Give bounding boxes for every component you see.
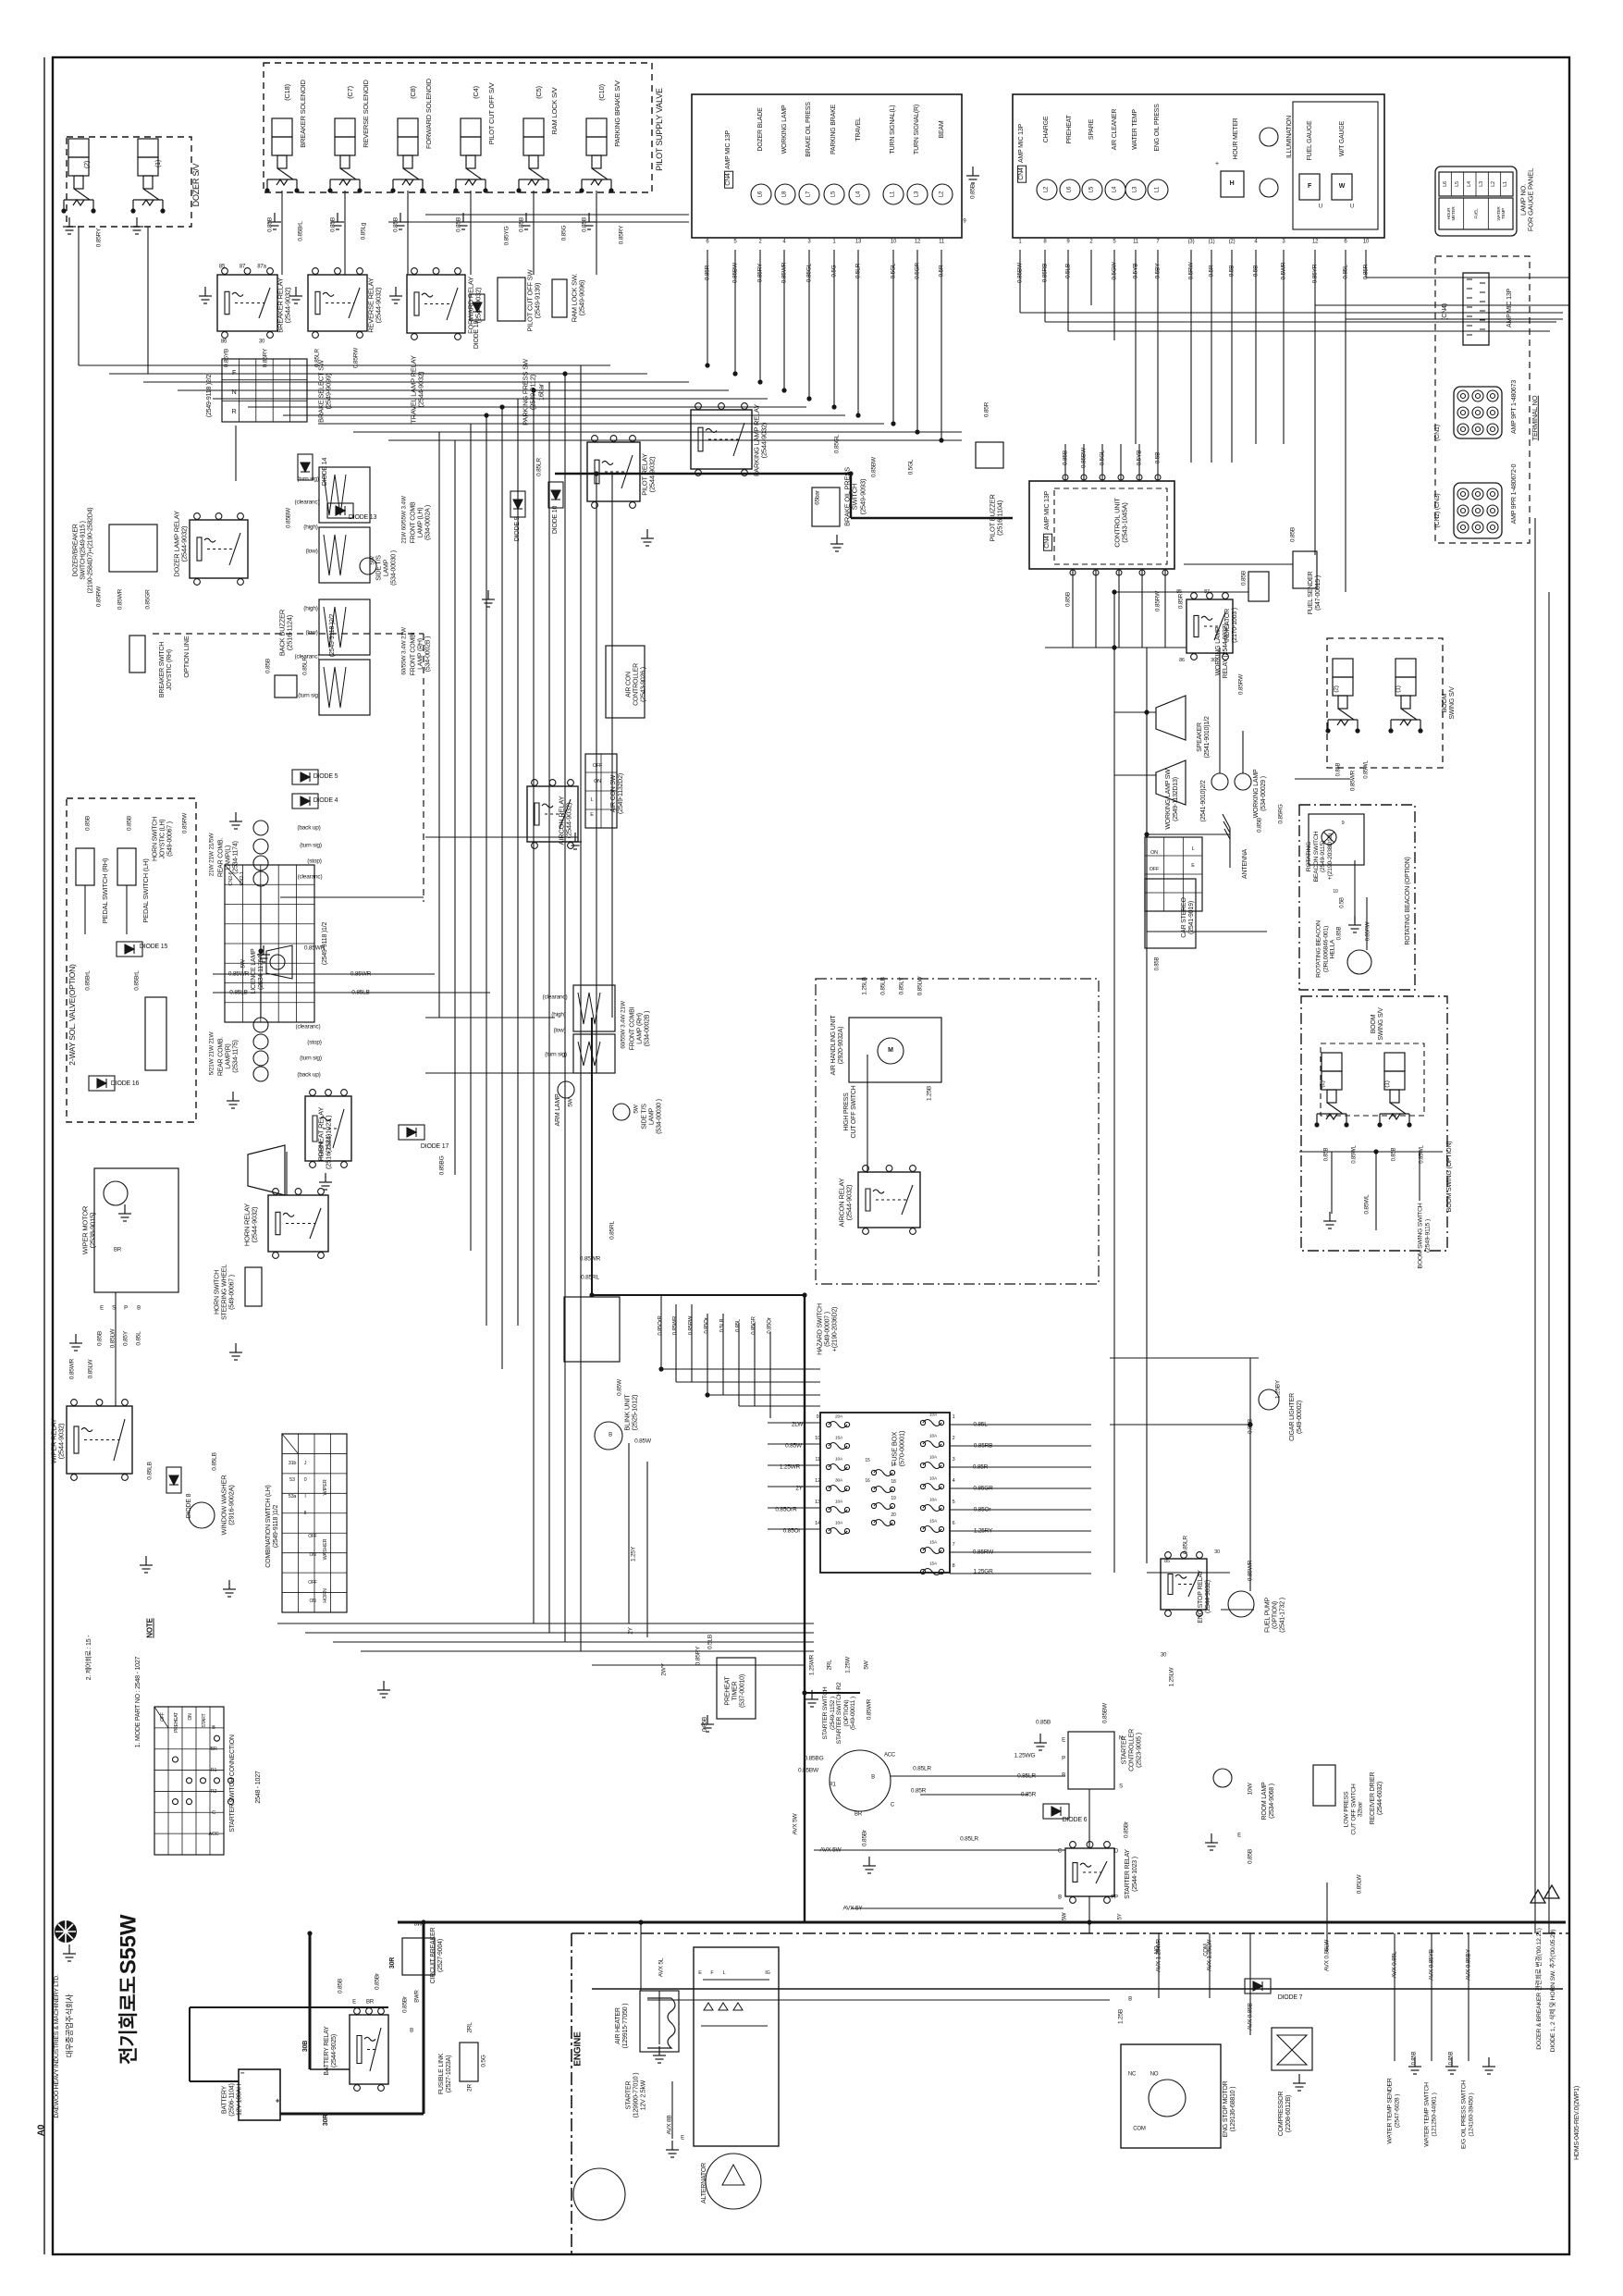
label-w-avx5w: AVX 5W: [820, 1846, 842, 1853]
label-c-fusible_link: FUSIBLE LINK (2527-1023A): [438, 2054, 453, 2094]
label-c-dozer_sv: DOZER S/V: [191, 164, 201, 207]
label-w-COM: COM: [1133, 2127, 1145, 2133]
label-w-b085: 0.85B: [84, 816, 91, 831]
label-gauge-lamps-2-id: L5: [1089, 187, 1096, 192]
label-fuse_box-right_pins-6: 7: [953, 1542, 955, 1548]
label-c-pilot_supply_valve: PILOT SUPPLY VALVE: [655, 88, 664, 171]
label-gauge-lamps-5-label: ENG OIL PRESS: [1154, 104, 1162, 151]
label-w-P: P: [124, 1306, 128, 1313]
label-w-b085: 0.85B: [581, 217, 587, 232]
label-c-pedal_sw_rh: PEDAL SWITCH (RH): [102, 858, 109, 924]
label-console-pins-8: 12: [915, 240, 920, 246]
label-gauge-lamps-0-id: L2: [1044, 187, 1051, 192]
label-console-pins-3: 4: [782, 240, 785, 246]
label-c-fnr_select: (2549-9118 )2/2: [329, 614, 337, 657]
label-c-combination_sw: COMBINATION SWITCH (LH) (2549-9118 )1/2: [265, 1485, 280, 1567]
label-w-II: II: [304, 1511, 307, 1516]
label-w-gl085: 0.85GL: [833, 435, 840, 453]
label-w-wr085: 0.85WR: [580, 1255, 600, 1262]
label-fuse_box-mid_pins-1: 18: [891, 1480, 895, 1486]
label-w-w5: 5W: [369, 556, 375, 564]
label-c-diode5: DIODE 5: [314, 773, 338, 781]
label-fuse_box-left_wires-1: 0.85W: [785, 1442, 802, 1449]
label-gauge-pins-4: 5: [1113, 240, 1115, 246]
label-w-lr085: 0.85LR: [1182, 1536, 1188, 1554]
label-gauge-wires-0: 0.85BW: [1016, 263, 1023, 283]
label-w-cn4: CN4: [724, 170, 733, 188]
label-w-cn26: CN2-6: [228, 872, 234, 886]
label-w-p2: (2): [1319, 1080, 1325, 1087]
label-console-wires-8: 0.5GR: [914, 263, 920, 279]
label-w-wr085: 0.85WR: [1349, 771, 1356, 791]
label-c-rotating_beacon_sw: ROTATING BEACON SWITCH (2549-9115) +(219…: [1306, 832, 1334, 883]
label-c-brake_oil_press_switch: BRAKE OIL PRESS SWITCH (2549-9093): [843, 467, 867, 526]
label-w-yb085: 0.85YB: [223, 349, 229, 367]
label-sheet-model: S55W: [117, 1915, 142, 1975]
label-w-frh_w: 60/55W 3.4W 21W: [400, 627, 407, 675]
label-gauge-wires-5: 0.5BY: [1154, 264, 1161, 279]
label-console-pins-2: 2: [758, 240, 761, 246]
label-fuse_box-ratings_right-6: 15A: [929, 1540, 937, 1545]
label-console-pins-1: 5: [733, 240, 736, 246]
label-w-rl085: 0.85RL: [581, 1274, 599, 1280]
label-console-lamps-2-label: BRAKE OIL PRESS: [805, 102, 813, 156]
label-c-boom_swing_sw: BOOM SWING SWITCH (2549-9115 ): [1417, 1204, 1431, 1269]
label-c-pilot_cutoff_sw: PILOT CUT OFF SW (2549-9139): [527, 270, 543, 332]
label-w-wl085: 0.85WL: [1352, 1145, 1359, 1163]
label-gauge-lamps-2-label: SPARE: [1088, 119, 1096, 140]
label-fuse_box-bottom_wires-3: 5W: [863, 1660, 869, 1669]
label-starter_conn-terminals-1: BR: [210, 1747, 216, 1752]
label-w-ON: ON: [309, 1599, 315, 1605]
diode-symbols: [89, 294, 1271, 1994]
label-gauge-pins-11: 3: [1282, 240, 1285, 246]
label-w-ly085: 0.85LY: [898, 978, 904, 995]
label-w-rw085: 0.85RW: [181, 813, 188, 833]
label-w-ry085: 0.85RY: [262, 349, 268, 367]
label-w-L: L: [1192, 846, 1195, 852]
label-w-rl2: 2RL: [466, 2022, 473, 2032]
label-w-E: E: [1237, 1833, 1241, 1840]
label-w-BR: BR: [855, 1812, 862, 1819]
label-w-b085: 0.85B: [1036, 1719, 1051, 1725]
label-w-E: E: [681, 2136, 684, 2142]
label-sheet-company_kr: 대우중공업주식회사: [66, 1994, 75, 2058]
label-w-rg085: 0.85RG: [1277, 804, 1284, 823]
label-fuse_box-mid_pins-3: 20: [891, 1513, 895, 1519]
label-gauge-wires-3: 0.5GW: [1111, 262, 1117, 279]
label-w-r30: 30R: [323, 2115, 330, 2126]
label-c-diode7: DIODE 7: [1278, 1994, 1303, 2002]
label-w-w5: 5W: [633, 1105, 639, 1113]
label-terminal-items-2-cn: (CN2) (CN3): [1434, 493, 1442, 527]
label-c-hazard_switch: HAZARD SWITCH (549-00007 ) +(2190-2036D2…: [817, 1303, 838, 1355]
label-w-frh_w: 60/55W 3.4W 21W: [620, 1001, 626, 1049]
label-w-yb05: 0.5YB: [1136, 451, 1142, 466]
label-c-pedal_sw_lh: PEDAL SWITCH (LH): [142, 858, 150, 922]
label-lamp_no-row1-0: L6: [1443, 181, 1448, 187]
label-w-t86: 86: [221, 339, 227, 346]
label-w-ry085: 0.85RY: [695, 1647, 701, 1665]
label-gauge-pins-1: 8: [1043, 240, 1046, 246]
label-c-diode4: DIODE 4: [314, 797, 338, 805]
label-w-B: B: [609, 1433, 612, 1439]
label-w-r2: 2R: [466, 2084, 473, 2092]
label-c-pilot_buzzer: PILOT BUZZER (2516-1104): [990, 494, 1005, 541]
lamp-symbols: [104, 128, 1371, 2220]
label-fuse_box-right_wires-7: 1.25GR: [973, 1568, 992, 1574]
label-c-parking_lamp_relay: PARKING LAMP RELAY (2544-9032): [754, 404, 769, 476]
label-fuse_box-right_pins-0: 1: [953, 1414, 955, 1420]
label-starter_conn-positions-3: START: [203, 1714, 208, 1728]
label-w-R: R: [232, 409, 237, 416]
label-w-clear: (clearanc): [543, 994, 568, 1000]
label-gauge-pins-13: 6: [1344, 240, 1346, 246]
label-fuse_box-right_pins-7: 8: [953, 1563, 955, 1569]
label-w-B: B: [410, 2029, 413, 2035]
label-c-parking_press_sw: PARKING PRESS SW (2549-9112) 16bar: [522, 359, 545, 426]
label-console-wires-9: 0.5R: [938, 265, 944, 278]
label-fuse_box-right_wires-0: 0.85L: [973, 1421, 987, 1427]
label-w-avx5y: AVX 5Y: [842, 1905, 862, 1911]
label-w-turnsig: (turn sig): [545, 1051, 567, 1057]
label-sheet-drawing_no: HDMS-0405-REV.0(2WP1): [1574, 2086, 1581, 2160]
label-c-amp_mic: AMP MIC 13P: [1018, 124, 1026, 163]
label-w-wl085: 0.85WL: [1420, 1145, 1426, 1163]
label-w-ry085: 0.85RY: [95, 228, 102, 247]
label-w-b085: 0.85B: [1247, 1849, 1253, 1864]
label-w-wl085: 0.85WL: [1364, 760, 1371, 778]
label-w-b085: 0.85B: [1392, 1148, 1398, 1162]
label-w-r085: 0.85R: [1021, 1791, 1036, 1797]
label-fuse_box-right_pins-4: 5: [953, 1500, 955, 1505]
label-c-comb12: (2549-9118 )1/2: [322, 922, 329, 965]
label-c-window_washer: WINDOW WASHER (2916-9002A): [221, 1475, 237, 1535]
label-w-N: N: [232, 389, 237, 397]
label-w-w085: 0.85W: [634, 1438, 651, 1444]
label-fuse_box-bottom_wires-0: 1.25WR: [808, 1655, 815, 1675]
label-w-y5: 5Y: [1118, 1914, 1125, 1920]
label-gauge-pins-12: 12: [1312, 240, 1318, 246]
label-console-pins-4: 3: [807, 240, 810, 246]
label-w-t86: 86: [1179, 658, 1185, 663]
label-fuse_box-ratings_right-5: 15A: [929, 1519, 937, 1524]
label-c-receiver_drier: RECEIVER DRIER (2544-6032): [1370, 1772, 1384, 1825]
label-c-pilot_relay: PILOT RELAY (2544-9032): [642, 453, 658, 495]
label-w-r085: 0.85R: [983, 402, 990, 417]
label-w-flh_w: 21W 60/55W 3.4W: [400, 496, 407, 544]
label-console-lamps-1-label: WORKING LAMP: [781, 105, 789, 154]
label-w-gl05: 0.5GL: [1099, 451, 1105, 466]
label-fuse_box-ratings_right-2: 10A: [929, 1455, 937, 1460]
label-w-OFF: OFF: [308, 1535, 316, 1540]
label-w-bg085: 0.85BG: [438, 1156, 445, 1176]
label-w-or085: 0.85Or: [705, 1317, 711, 1333]
label-w-avxl085: AVX 0.85L: [1391, 1952, 1397, 1979]
label-w-BR: BR: [366, 2000, 374, 2006]
label-c-aircon_relay: AIRCON RELAY (2544-9032): [559, 796, 574, 846]
label-starter_conn-positions-2: ON: [189, 1713, 194, 1720]
label-c-arm_lamp: ARM LAMP: [555, 1094, 562, 1127]
label-notes-n2: 2. 제어회로 : 15 -: [86, 1636, 93, 1681]
label-w-rw085: 0.85RW: [1237, 674, 1244, 695]
label-console-wires-4: 0.85GL: [805, 264, 812, 282]
label-w-b085: 0.85B: [264, 659, 271, 673]
label-lamp_no-row1-3: L3: [1479, 181, 1484, 187]
label-w-t30: 30: [1211, 658, 1216, 663]
label-c-rear_comb_r: REAR COMB. LAMP(R) (2534-1175): [217, 1037, 239, 1076]
label-w-brl085: 0.85BrL: [84, 970, 91, 990]
label-w-ON: ON: [1150, 850, 1158, 856]
label-w-t9: 9: [963, 219, 965, 226]
label-w-l085: 0.85L: [736, 1319, 743, 1332]
label-starter_conn-positions-0: OFF: [161, 1712, 166, 1721]
label-fuse_box-ratings_left-4: 10A: [835, 1500, 842, 1504]
label-w-b085: 0.85B: [518, 217, 524, 232]
label-c-starter_controller: STARTER CONTROLLER (2523-9005 ): [1121, 1729, 1142, 1771]
label-w-gr085: 0.85GR: [752, 1316, 758, 1334]
label-w-B: B: [137, 1306, 141, 1313]
label-w-OFF: OFF: [308, 1581, 316, 1586]
label-c-air_heater: AIR HEATER (129915-77050 ): [615, 2004, 630, 2049]
label-w-p1: (1): [1395, 685, 1401, 692]
label-w-p2: (2): [84, 161, 92, 168]
label-fuse_box-left_pins-2: 11: [815, 1457, 819, 1463]
label-c-amp_mic: AMP MIC 13P: [725, 130, 732, 169]
label-w-w085: 0.85W: [616, 1379, 622, 1396]
label-w-lb05: 0.5LB: [707, 1635, 713, 1649]
label-console-lamps-5-label: TURN SIGNAL(L): [890, 105, 897, 154]
label-gauge-pins-8: (1): [1209, 240, 1215, 246]
tables: [154, 172, 1513, 1855]
label-w-avxby085: AVX 0.85BY: [1465, 1949, 1471, 1981]
label-w-plus: +: [276, 2098, 279, 2106]
label-fuse_box-name: FUSE BOX (570-00001): [891, 1431, 907, 1467]
label-w-p1: (1): [1383, 1080, 1390, 1087]
label-c-eng_stop_relay: ENG STOP RELAY (2544-9032): [1198, 1570, 1212, 1623]
label-c-battery: BATTERY (2506-1104) 12V 100AH: [221, 2083, 242, 2116]
label-w-w10: 10W: [1247, 1784, 1253, 1796]
label-w-t87: 87: [1204, 589, 1210, 595]
label-c-reverse_relay: REVERSE RELAY (2544-9032): [368, 278, 384, 332]
label-w-bar65: 65bar: [814, 490, 820, 505]
label-w-t30: 30: [1161, 1653, 1166, 1660]
label-w-p1: (1): [155, 160, 163, 167]
label-fuse_box-right_wires-2: 0.85R: [973, 1463, 988, 1470]
label-w-lb085: 0.85LB: [146, 1462, 153, 1479]
label-starter_conn-terminals-2: R1: [211, 1768, 217, 1773]
label-w-BR: BR: [114, 1248, 121, 1254]
label-w-ON: ON: [594, 779, 601, 784]
label-console-lamps-3-label: PARKING BRAKE: [830, 105, 838, 154]
label-gauge-lamps-4-id: L3: [1133, 187, 1139, 192]
label-w-avxlw125: AVX 1.25LW: [1206, 1940, 1212, 1971]
label-console-lamps-6-id: L3: [915, 191, 921, 197]
label-w-b085: 0.85B: [392, 217, 399, 232]
label-fuse_box-left_pins-5: 14: [815, 1521, 820, 1526]
wiring-diagram-sheet: PILOT SUPPLY VALVEDOZER S/V(1)(2)(C18)BR…: [0, 0, 1623, 2296]
label-w-p2: (2): [1333, 685, 1339, 692]
label-w-stop: (stop): [307, 1039, 321, 1045]
label-w-turnsig: (turn sig): [297, 475, 319, 482]
label-c-eng_stop_motor: ENG STOP MOTOR (129136-68810 ): [1223, 2081, 1237, 2138]
label-w-bw085: 0.85BW: [798, 1767, 818, 1773]
label-w-U: U: [1350, 204, 1354, 211]
label-console-wires-7: 0.5GL: [890, 264, 896, 279]
label-w-rw085: 0.85RW: [689, 1316, 695, 1335]
label-fuse_box-ratings_right-1: 10A: [929, 1434, 937, 1438]
label-c-preheat_relay: PREHEAT RELAY (2544-1023 ): [318, 1107, 334, 1161]
label-w-stop: (stop): [307, 858, 321, 864]
label-w-b05: 0.5B: [1340, 897, 1346, 908]
label-c-brake_select_sw: BRAKE SELECT SW (2549-9099): [318, 360, 334, 423]
label-w-br085: 0.85Br: [861, 1830, 867, 1846]
label-gauge-pins-7: (3): [1188, 240, 1195, 246]
label-lamp_no-row1-5: L1: [1503, 181, 1508, 187]
label-gauge-wires-12: 0.85L: [1342, 265, 1348, 278]
label-c-working_lamp_relay: WORKING LAMP RELAY (2544-9032): [1215, 624, 1230, 679]
label-fuse_box-left_wires-5: 0.85Or: [783, 1527, 801, 1534]
label-c-cigar_lighter: CIGAR LIGHTER (549-00002): [1289, 1393, 1304, 1441]
label-w-backup: (back up): [297, 1071, 320, 1078]
label-c-side_ts1: SIDE T/S LAMP (534-00030 ): [641, 1099, 662, 1134]
label-c-breaker_solenoid: BREAKER SOLENOID: [300, 80, 307, 148]
label-fuse_box-ratings_left-5: 10A: [835, 1521, 842, 1525]
label-w-WIPER: WIPER: [323, 1479, 328, 1495]
label-w-E: E: [1062, 1738, 1065, 1745]
label-fuse_box-left_wires-0: 2LW: [792, 1421, 803, 1427]
label-gauge-wires-9: 0.5B: [1252, 265, 1259, 278]
label-terminal-items-1-name: AMP 9PT 1-480673: [1511, 380, 1518, 434]
label-w-IG: IG: [765, 1970, 769, 1976]
label-w-gl05: 0.5GL: [907, 460, 914, 475]
label-c-air_handling: AIR HANDLING UNIT (2920-9032A): [830, 1016, 845, 1076]
label-w-U: U: [1319, 204, 1322, 211]
label-lamp_no-row2-1: FUEL: [1473, 209, 1478, 219]
label-w-F: F: [710, 1970, 713, 1976]
label-w-t85: 85: [219, 265, 225, 271]
label-w-B: B: [1128, 1997, 1132, 2004]
label-w-NO: NO: [1150, 2072, 1159, 2079]
label-w-lw085: 0.85LW: [87, 1360, 93, 1379]
label-w-L: L: [723, 1970, 726, 1976]
label-c-fuel_sender: FUEL SENDER (547-00015 ): [1308, 572, 1322, 615]
label-w-b085: 0.85B: [455, 217, 461, 232]
label-c-preheat_timer: PREHEAT TIMER (537-00010): [724, 1674, 745, 1708]
label-w-r085: 0.85R: [1177, 594, 1184, 609]
label-terminal-items-0-name: AMP MIC 13P: [1506, 289, 1514, 327]
label-w-lb125: 1.25LB: [861, 977, 867, 994]
relay-symbols: [67, 268, 1233, 2092]
label-w-c10: (C10): [598, 84, 606, 101]
label-w-t85: 85: [1176, 589, 1182, 595]
label-w-P: P: [1062, 1757, 1065, 1763]
label-console-pins-6: 13: [855, 240, 861, 246]
label-w-F: F: [1308, 183, 1311, 191]
label-c-diode15: DIODE 15: [140, 944, 167, 951]
label-lamp_no-row1-2: L4: [1467, 181, 1472, 187]
label-w-y125: 1.25Y: [630, 1547, 636, 1562]
label-fuse_box-side_pins-1: 16: [865, 1479, 869, 1485]
label-gauge-hour_meter: HOUR METER: [1233, 117, 1240, 159]
label-gauge-wires-13: 0.85R: [1362, 265, 1369, 279]
label-console-pins-9: 11: [939, 240, 944, 246]
ground-symbols: [63, 167, 1495, 2157]
label-console-lamps-0-id: L6: [758, 191, 765, 197]
label-fuse_box-ratings_right-0: 10A: [929, 1413, 937, 1417]
label-c-diode17: DIODE 17: [421, 1143, 449, 1151]
label-fuse_box-bottom_wires-1: 2RL: [826, 1660, 832, 1670]
label-notes-n1: 1. MODE PART NO : 2548 - 1027: [135, 1657, 142, 1747]
label-w-wl085: 0.85WL: [1363, 1194, 1370, 1214]
label-w-yg085: 0.85YG: [503, 227, 510, 246]
label-c-rotating_beacon: ROTATING BEACON (2RL006846-001) HELLA: [1316, 920, 1337, 978]
label-c-front_comb_rh: FRONT COMBI LAMP (RH) (534-0002B ): [410, 633, 431, 676]
label-w-clear: (clearanc): [295, 499, 320, 505]
label-gauge-pins-2: 9: [1066, 240, 1069, 246]
label-w-lr085: 0.85LR: [535, 458, 542, 476]
label-starter_conn-terminals-3: R2: [211, 1789, 217, 1795]
label-w-c4: (C4): [473, 86, 480, 99]
label-w-R1: R1: [829, 1783, 835, 1789]
label-fuse_box-right_wires-5: 1.25RY: [974, 1527, 992, 1534]
label-w-turnsig: (turn sig): [298, 692, 320, 698]
label-w-b085: 0.85B: [969, 184, 976, 199]
label-c-diode16: DIODE 16: [111, 1080, 139, 1088]
label-fuse_box-mid_pins-0: 17: [891, 1463, 895, 1469]
label-starter_conn-positions-1: PREHEAT: [175, 1712, 180, 1733]
label-w-bw085: 0.85BW: [285, 508, 291, 528]
label-w-brl085: 0.85BrL: [133, 970, 140, 990]
label-w-g05: 0.5G: [480, 2055, 486, 2067]
label-w-minus: −: [240, 2070, 244, 2079]
label-w-low: (low): [305, 629, 317, 636]
label-gauge-wires-6: 0.5RW: [1187, 263, 1194, 280]
label-w-b085: 0.85B: [1336, 763, 1343, 777]
label-c-boom_swing_sv: BOOM SWING S/V: [1371, 1007, 1385, 1040]
label-gauge-wt_gauge: W/T GAUGE: [1339, 121, 1346, 156]
label-sheet-title_kr: 전기회로도: [118, 1976, 141, 2065]
label-c-diode8: DIODE 8: [186, 1494, 193, 1519]
label-w-bw085: 0.85BW: [1080, 448, 1087, 468]
label-c-dozer_lamp_relay: DOZER LAMP RELAY (2544-9032): [174, 511, 190, 577]
label-c-diode13: DIODE 13: [349, 514, 376, 522]
label-w-lw085: 0.85LW: [916, 977, 923, 996]
label-w-ACC: ACC: [884, 1753, 895, 1759]
label-w-r085: 0.85R: [911, 1787, 926, 1794]
label-c-ram_lock_sv: RAM LOCK S/V: [551, 88, 559, 135]
wiring-graphics: [0, 0, 1623, 2296]
label-w-J: J: [304, 1461, 307, 1466]
label-w-lb05: 0.5LB: [720, 1319, 727, 1333]
label-w-avxyb085: AVX 0.85YB: [1428, 1949, 1434, 1981]
label-w-by125: 1.25BY: [1274, 1380, 1281, 1399]
label-w-avx5l: AVX 5L: [658, 1958, 664, 1977]
label-c-low_press: LOW PRESS CUT OFF SWITCH 32bar: [1344, 1784, 1365, 1834]
label-w-bg085: 0.85BG: [805, 1755, 824, 1761]
label-gauge-wires-7: 0.5R: [1208, 265, 1214, 278]
label-c-diode14: DIODE 14: [322, 458, 329, 486]
label-fuse_box-right_pins-2: 3: [953, 1457, 955, 1463]
label-w-wr085: 0.85WR: [228, 970, 249, 977]
label-gauge-wires-2: 0.5LB: [1064, 264, 1071, 278]
label-c-speaker: SPEAKER (2541-9010)1/2: [1197, 716, 1211, 758]
label-c-water_temp_sender: WATER TEMP SENDER (2547-6028 ): [1386, 2078, 1400, 2143]
label-lamp_no-title: LAMP NO. FOR GAUGE PANEL: [1520, 168, 1536, 231]
label-c-room_lamp: ROOM LAMP (2534-9068 ): [1261, 1783, 1276, 1821]
label-gauge-lamps-3-label: AIR CLEANER: [1112, 109, 1119, 150]
label-w-S: S: [112, 1306, 116, 1313]
